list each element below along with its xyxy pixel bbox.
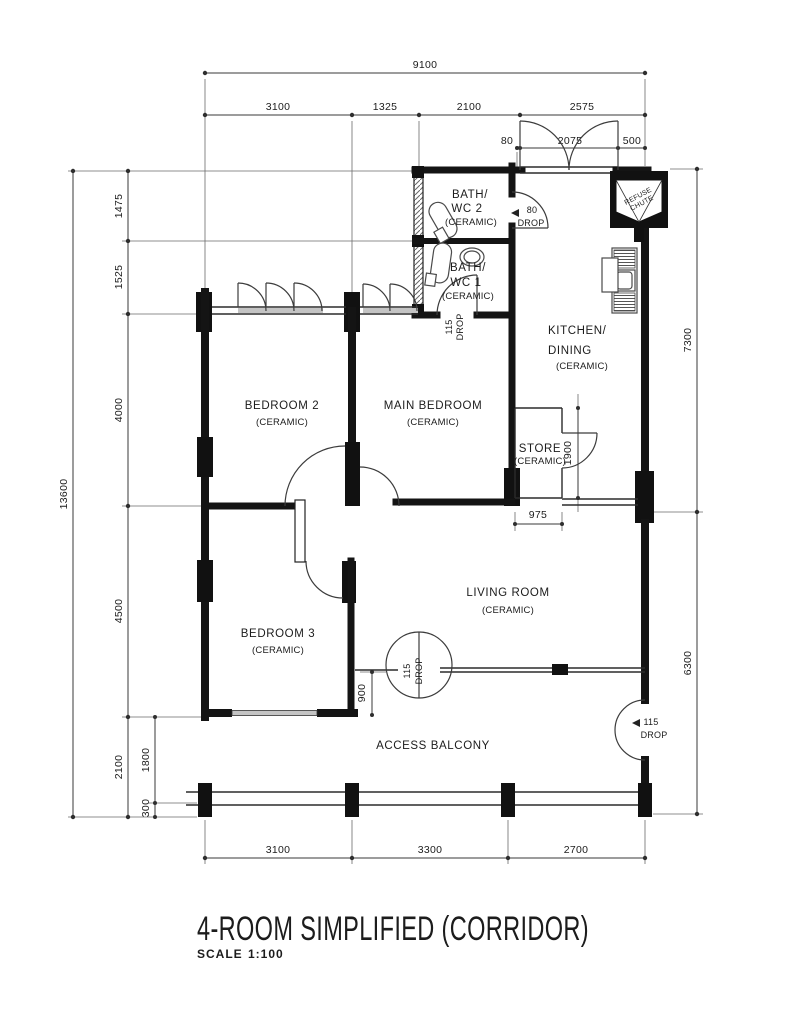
bath1-label-1: BATH/ [450,262,486,274]
dim-left-4: 4500 [113,599,125,624]
dim-bottom-1: 3100 [266,844,291,856]
drop-115-right-label: DROP [641,730,668,740]
kitchen-finish: (CERAMIC) [556,361,608,372]
dim-bedroom3-offset: 900 [356,684,368,702]
dim-top-1: 3100 [266,101,291,113]
drop-115-wc1-value: 115 [444,320,454,335]
dim-bottom-2: 3300 [418,844,443,856]
access-balcony-label: ACCESS BALCONY [376,740,490,752]
drop-115-right-value: 115 [644,717,659,727]
bath2-label-1: BATH/ [452,189,488,201]
dim-overall-height: 13600 [58,479,70,510]
drop-115-balcony-value: 115 [402,664,412,679]
bedroom2-finish: (CERAMIC) [256,417,308,428]
bedroom3-label: BEDROOM 3 [241,628,315,640]
dim-overall-width: 9100 [413,59,438,71]
floor-plan-drawing: 9100 3100 1325 2100 2575 80 2075 500 136… [0,0,800,1023]
dim-right-6300: 6300 [682,651,694,676]
drop-115-balcony-label: DROP [414,658,424,685]
dim-left-2: 1525 [113,265,125,290]
drop-80-value: 80 [527,205,537,215]
refuse-chute: REFUSE CHUTE [610,171,668,242]
scale-value: 1:100 [248,947,284,961]
store-finish: (CERAMIC) [514,456,566,467]
dim-top-4: 2575 [570,101,595,113]
bath1-finish: (CERAMIC) [442,291,494,302]
drop-115-wc1-label: DROP [455,314,465,341]
drop-80-label: DROP [518,218,545,228]
dim-left-5: 2100 [113,755,125,780]
kitchen-label-2: DINING [548,345,592,357]
kitchen-shelf [602,258,618,292]
walls [186,166,654,817]
dim-top-3: 2100 [457,101,482,113]
dim-left-inner-300: 300 [140,799,152,817]
dim-bottom-3: 2700 [564,844,589,856]
dim-entrance-500: 500 [623,135,641,147]
scale-label: SCALE [197,947,243,961]
kitchen-label-1: KITCHEN/ [548,325,607,337]
living-room-label: LIVING ROOM [466,587,549,599]
living-room-finish: (CERAMIC) [482,605,534,616]
floor-plan-page: 9100 3100 1325 2100 2575 80 2075 500 136… [0,0,800,1023]
bath2-label-2: WC 2 [451,203,482,215]
dim-left-1: 1475 [113,194,125,219]
dim-right-7300: 7300 [682,328,694,353]
main-bedroom-label: MAIN BEDROOM [384,400,483,412]
dim-store-width: 975 [529,509,547,521]
drawing-title: 4-ROOM SIMPLIFIED (CORRIDOR) [197,910,589,948]
dim-left-inner-1800: 1800 [140,748,152,773]
store-label: STORE [519,443,561,455]
main-bedroom-finish: (CERAMIC) [407,417,459,428]
dim-top-2: 1325 [373,101,398,113]
title-block: 4-ROOM SIMPLIFIED (CORRIDOR) SCALE 1:100 [197,910,589,961]
bath2-finish: (CERAMIC) [445,217,497,228]
bath1-label-2: WC 1 [450,277,481,289]
dim-entrance-80: 80 [501,135,513,147]
bedroom2-label: BEDROOM 2 [245,400,319,412]
dim-left-3: 4000 [113,398,125,423]
bedroom3-finish: (CERAMIC) [252,645,304,656]
wc1-toilet [425,241,453,288]
